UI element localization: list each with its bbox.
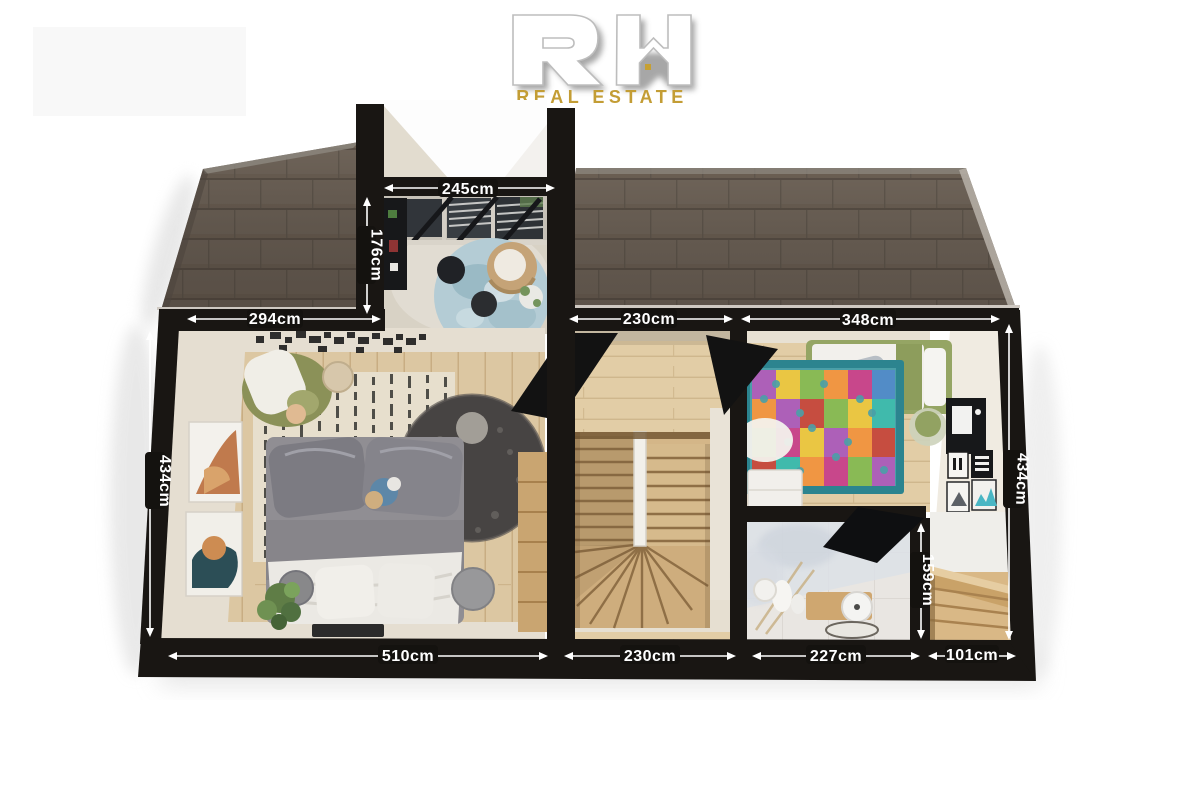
svg-text:348cm: 348cm <box>842 312 894 329</box>
svg-text:230cm: 230cm <box>623 311 675 328</box>
svg-text:434cm: 434cm <box>1012 453 1031 506</box>
svg-text:230cm: 230cm <box>624 648 676 665</box>
svg-text:227cm: 227cm <box>810 648 862 665</box>
svg-text:294cm: 294cm <box>249 311 301 328</box>
svg-text:176cm: 176cm <box>368 229 385 281</box>
svg-text:159cm: 159cm <box>919 554 936 606</box>
svg-text:510cm: 510cm <box>382 648 434 665</box>
svg-text:245cm: 245cm <box>442 181 494 198</box>
svg-text:101cm: 101cm <box>946 647 998 664</box>
svg-text:434cm: 434cm <box>156 455 173 507</box>
